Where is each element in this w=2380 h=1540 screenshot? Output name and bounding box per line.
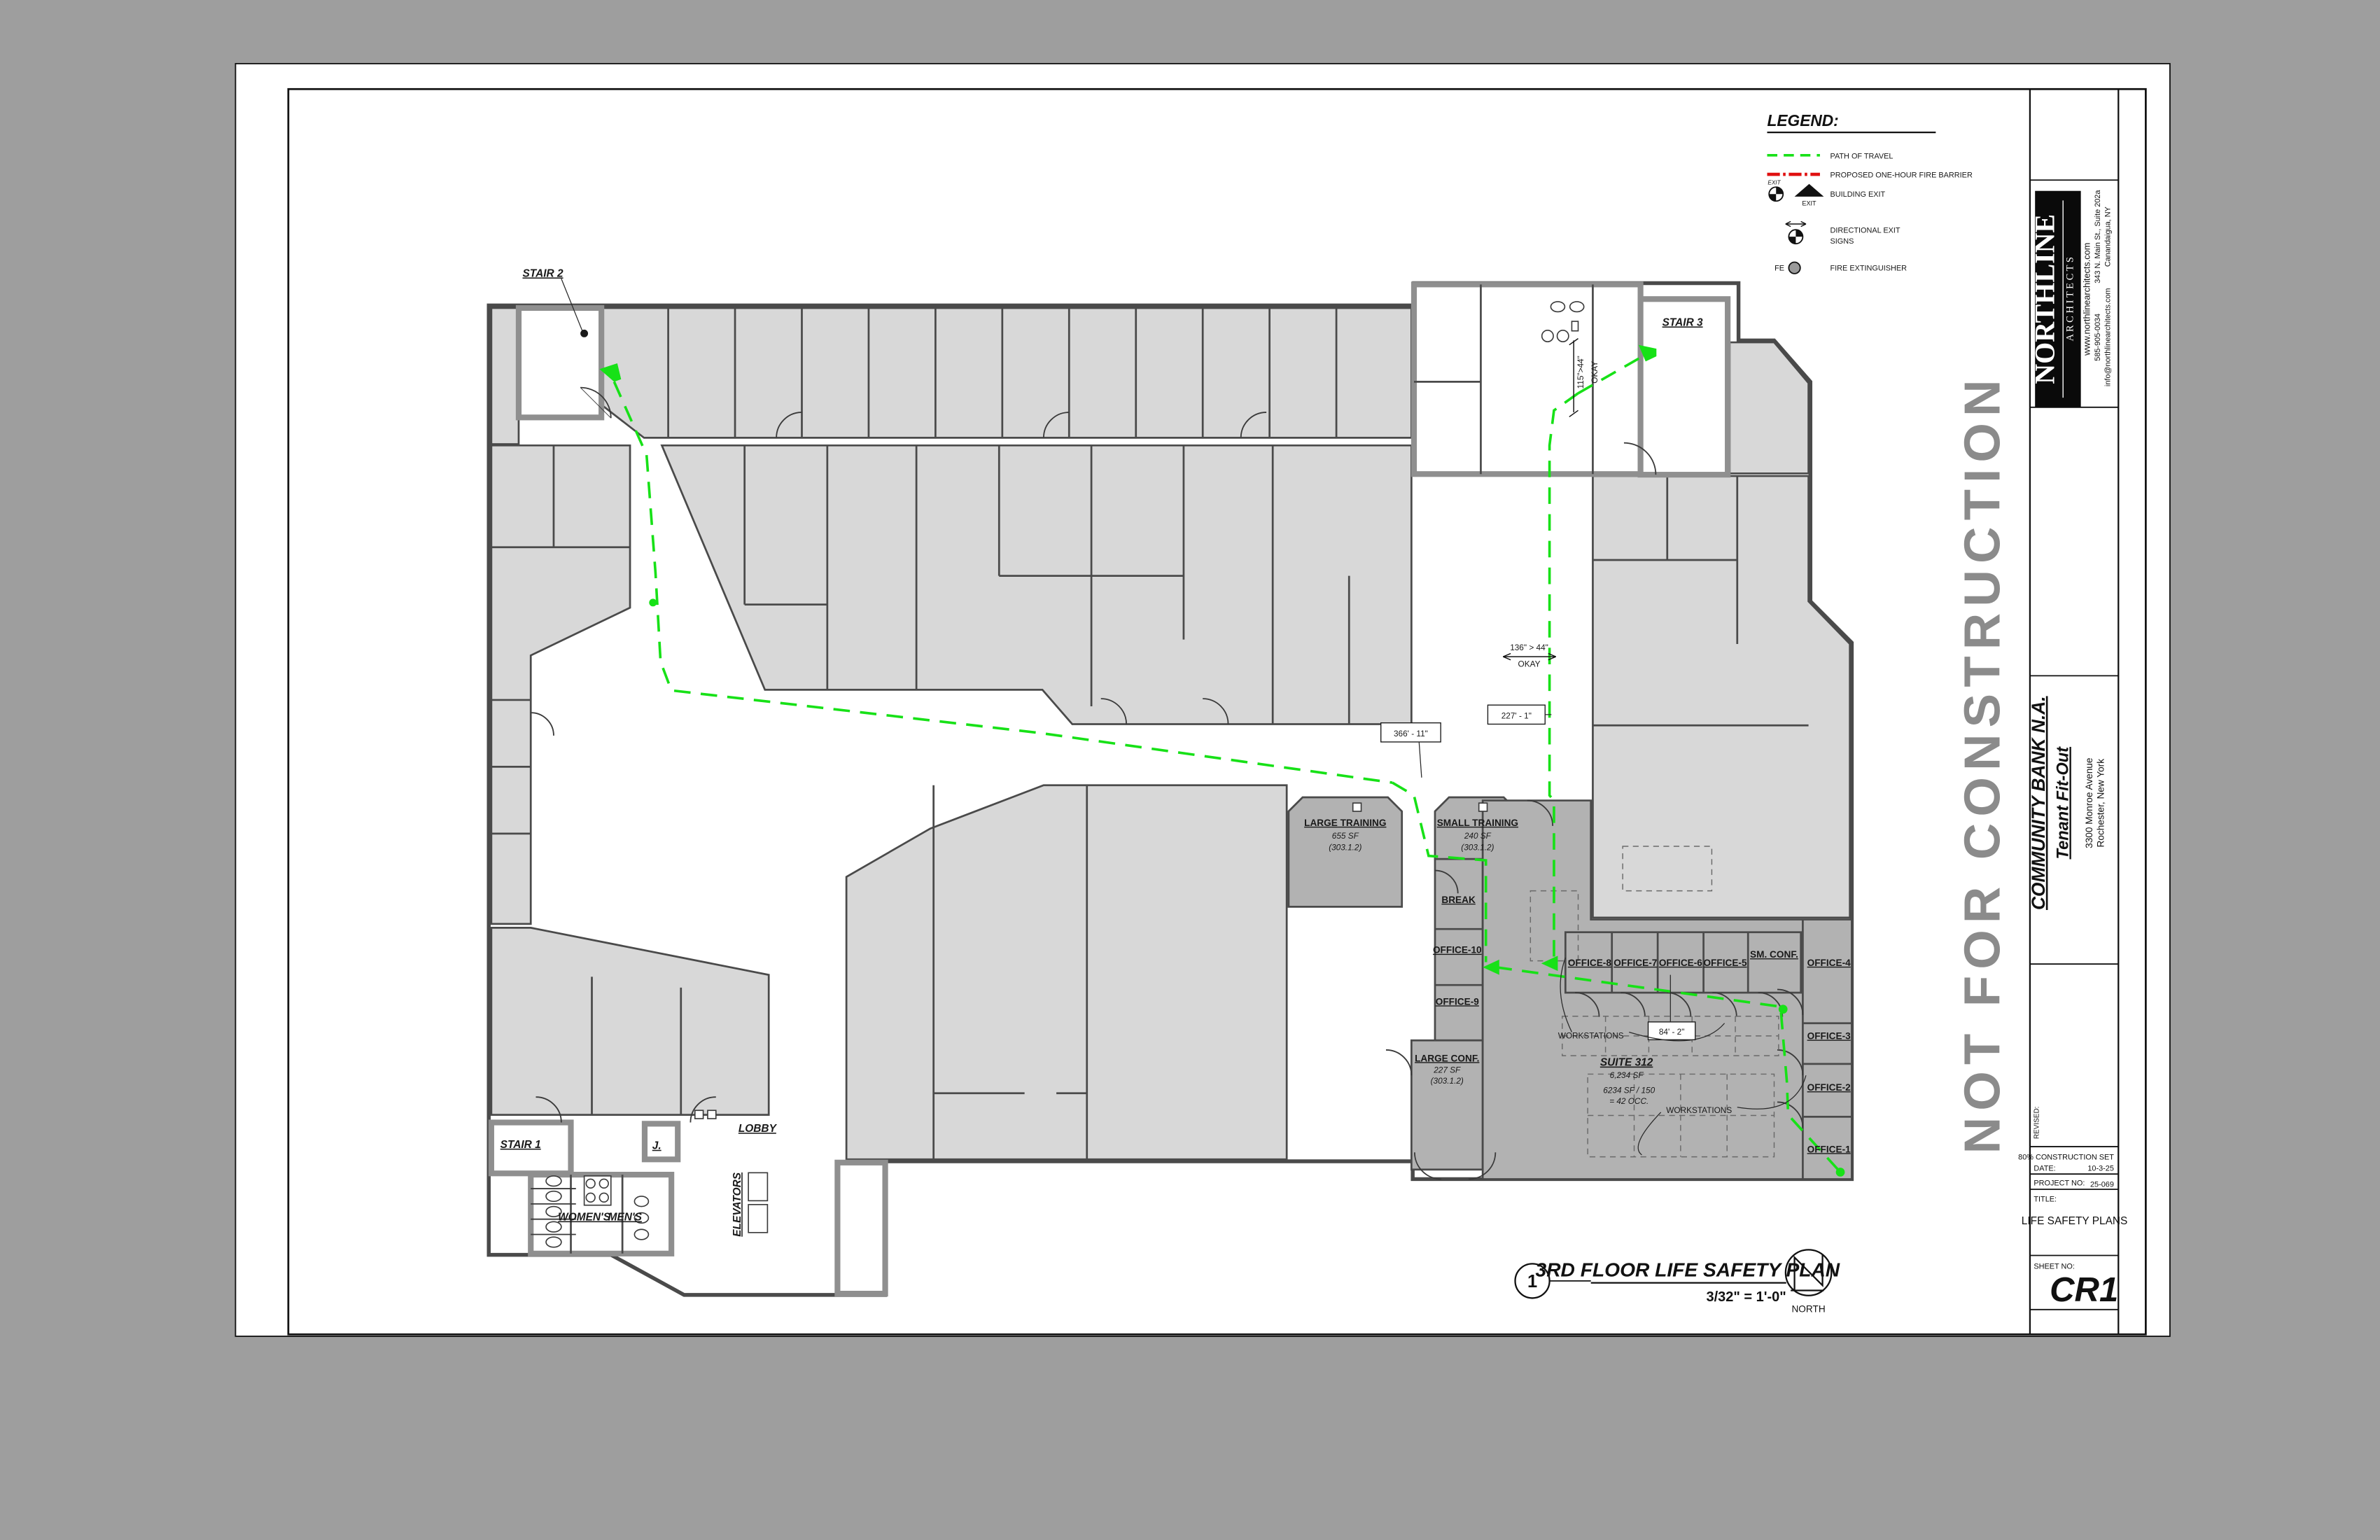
sheet-no-label: SHEET NO:	[2033, 1263, 2075, 1271]
legend-fe-label: FIRE EXTINGUISHER	[1830, 264, 1907, 272]
label-stair2: STAIR 2	[522, 267, 563, 279]
life-safety-plan-svg: 136" > 44" OKAY 115">44" OKAY 227' - 1" …	[0, 0, 2380, 1400]
label-workstations-2: WORKSTATIONS	[1666, 1105, 1732, 1115]
project-site-1: 3300 Monroe Avenue	[2084, 758, 2094, 848]
label-large-training-code: (303.1.2)	[1329, 842, 1361, 852]
label-small-training: SMALL TRAINING	[1437, 818, 1518, 828]
label-small-training-sf: 240 SF	[1464, 831, 1492, 841]
project-no-value: 25-069	[2090, 1180, 2114, 1189]
not-for-construction-watermark: NOT FOR CONSTRUCTION	[1954, 373, 2010, 1154]
view-scale: 3/32" = 1'-0"	[1706, 1289, 1786, 1305]
label-large-training: LARGE TRAINING	[1304, 818, 1386, 828]
firm-website: www.northlinearchitects.com	[2081, 243, 2092, 356]
label-workstations-1: WORKSTATIONS	[1558, 1031, 1624, 1041]
legend-directional-label-2: SIGNS	[1830, 237, 1854, 246]
label-large-conf: LARGE CONF.	[1415, 1053, 1479, 1063]
label-office9: OFFICE-9	[1436, 996, 1479, 1007]
label-break: BREAK	[1441, 895, 1476, 905]
dim-door-ok: OKAY	[1590, 361, 1599, 384]
label-stair1: STAIR 1	[500, 1139, 541, 1151]
dim-path-227: 227' - 1"	[1501, 710, 1532, 720]
label-suite-sf: 6,234 SF	[1610, 1070, 1644, 1080]
label-large-conf-sf: 227 SF	[1433, 1065, 1461, 1075]
label-office5: OFFICE-5	[1703, 958, 1746, 968]
firm-address-1: 343 N. Main St., Suite 202a	[2094, 190, 2102, 283]
label-large-training-sf: 655 SF	[1332, 831, 1359, 841]
firm-email: info@northlinearchitects.com	[2103, 288, 2112, 386]
legend-title: LEGEND:	[1767, 111, 1838, 129]
legend-barrier-label: PROPOSED ONE-HOUR FIRE BARRIER	[1830, 171, 1972, 180]
label-office7: OFFICE-7	[1613, 958, 1657, 968]
project-no-label: PROJECT NO:	[2033, 1179, 2085, 1188]
label-office8: OFFICE-8	[1568, 958, 1611, 968]
title-value: LIFE SAFETY PLANS	[2022, 1215, 2128, 1227]
label-womens: WOMEN'S	[558, 1212, 611, 1224]
room-vestibule	[837, 1163, 885, 1294]
label-lobby: LOBBY	[738, 1123, 778, 1135]
label-large-conf-code: (303.1.2)	[1431, 1076, 1464, 1086]
exit-triangle-word: EXIT	[1802, 200, 1816, 207]
label-office6: OFFICE-6	[1659, 958, 1702, 968]
firm-address-2: Canandaigua, NY	[2103, 206, 2112, 267]
drawing-sheet: 136" > 44" OKAY 115">44" OKAY 227' - 1" …	[0, 0, 2380, 1400]
dim-corridor-width: 136" > 44"	[1510, 643, 1548, 652]
room-restrooms-top	[1414, 284, 1641, 474]
project-name: Tenant Fit-Out	[2054, 746, 2072, 860]
legend-directional-label-1: DIRECTIONAL EXIT	[1830, 227, 1900, 235]
dim-door-width: 115">44"	[1576, 356, 1585, 388]
label-suite: SUITE 312	[1600, 1057, 1653, 1069]
project-site-2: Rochester, New York	[2095, 759, 2106, 848]
label-elevators: ELEVATORS	[731, 1172, 743, 1236]
exit-sign-word: EXIT	[1767, 180, 1781, 186]
room-stair-2	[519, 308, 601, 417]
sheet-no-value: CR1	[2050, 1271, 2118, 1309]
project-client: COMMUNITY BANK N.A.	[2028, 696, 2049, 910]
label-office1: OFFICE-1	[1807, 1144, 1851, 1154]
label-office4: OFFICE-4	[1807, 958, 1851, 968]
firm-name: NORTHLINE	[2029, 214, 2060, 384]
date-value: 10-3-25	[2087, 1165, 2114, 1173]
label-stair3: STAIR 3	[1662, 316, 1703, 328]
label-occ-1: 6234 SF / 150	[1603, 1086, 1655, 1095]
fe-prefix: FE	[1774, 264, 1784, 272]
label-small-training-code: (303.1.2)	[1461, 842, 1494, 852]
floor-plan: 136" > 44" OKAY 115">44" OKAY 227' - 1" …	[489, 267, 1851, 1294]
label-janitor: J.	[652, 1140, 661, 1152]
firm-type: A R C H I T E C T S	[2065, 257, 2076, 341]
dim-path-84: 84' - 2"	[1659, 1027, 1685, 1037]
firm-phone: 585-905-0034	[2094, 314, 2102, 361]
title-label: TITLE:	[2033, 1195, 2057, 1203]
legend-exit-label: BUILDING EXIT	[1830, 190, 1885, 199]
label-office2: OFFICE-2	[1807, 1082, 1851, 1093]
revised-label: REVISED:	[2033, 1107, 2041, 1140]
north-label: NORTH	[1791, 1303, 1825, 1314]
label-sm-conf: SM. CONF.	[1750, 949, 1798, 960]
dim-path-366: 366' - 11"	[1394, 729, 1428, 738]
date-label: DATE:	[2033, 1165, 2055, 1173]
set-label: 80% CONSTRUCTION SET	[2018, 1153, 2114, 1161]
label-office3: OFFICE-3	[1807, 1030, 1851, 1041]
label-mens: MEN'S	[608, 1212, 643, 1224]
label-office10: OFFICE-10	[1433, 945, 1482, 955]
legend-path-label: PATH OF TRAVEL	[1830, 152, 1893, 160]
firm-logo: NORTHLINE A R C H I T E C T S	[2029, 191, 2080, 407]
label-occ-2: = 42 OCC.	[1609, 1096, 1648, 1106]
dim-corridor-ok: OKAY	[1518, 659, 1541, 669]
